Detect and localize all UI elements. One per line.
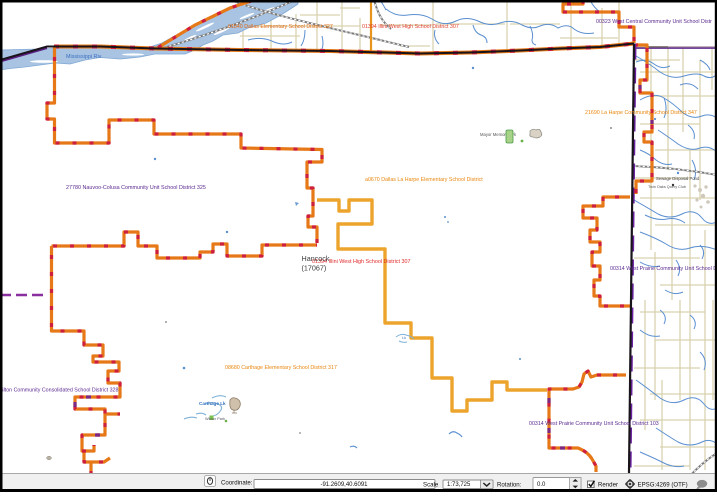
svg-text:27780 Nauvoo-Colusa Community: 27780 Nauvoo-Colusa Community Unit Schoo… — [66, 185, 206, 191]
svg-text:Coordinate:: Coordinate: — [221, 479, 253, 486]
svg-text:Wilcox Park: Wilcox Park — [205, 417, 225, 421]
svg-text:Hancock: Hancock — [302, 254, 330, 263]
svg-text:00314 West Prairie Community U: 00314 West Prairie Community Unit School… — [529, 421, 659, 427]
svg-text:1:73,725: 1:73,725 — [447, 482, 471, 488]
svg-text:(17067): (17067) — [302, 264, 327, 273]
svg-text:EPSG:4269 (OTF): EPSG:4269 (OTF) — [638, 481, 688, 488]
svg-text:0.0: 0.0 — [537, 482, 546, 488]
svg-text:21690 La Harpe Community Schoo: 21690 La Harpe Community School District… — [585, 110, 697, 116]
svg-text:milton Community Consolidated: milton Community Consolidated School Dis… — [0, 388, 118, 394]
svg-text:Rotation:: Rotation: — [497, 481, 522, 488]
svg-text:08680 Carthage Elementary Scho: 08680 Carthage Elementary School Distric… — [225, 365, 337, 371]
svg-text:Mississippi Riv: Mississippi Riv — [66, 54, 102, 60]
svg-text:Sewage Disposal Pond: Sewage Disposal Pond — [656, 176, 700, 181]
svg-text:01394 Illini West High School: 01394 Illini West High School District 3… — [362, 24, 459, 30]
svg-text:Twin Oaks Query Club: Twin Oaks Query Club — [648, 185, 686, 189]
svg-text:Render: Render — [598, 482, 618, 489]
svg-text:00323 West Central Community U: 00323 West Central Community Unit School… — [596, 19, 712, 25]
svg-text:00314 West Prairie Community U: 00314 West Prairie Community Unit School… — [610, 266, 717, 272]
svg-text:Scale: Scale — [423, 481, 439, 488]
svg-text:-91.2609,40.6091: -91.2609,40.6091 — [320, 482, 368, 488]
svg-text:Carthage Lk: Carthage Lk — [199, 401, 226, 406]
svg-text:Lk: Lk — [402, 336, 406, 340]
svg-text:a0670 Dallas La Harpe Elementa: a0670 Dallas La Harpe Elementary School … — [365, 177, 483, 183]
svg-text:01840 Dallas Elementary School: 01840 Dallas Elementary School District … — [228, 24, 333, 30]
